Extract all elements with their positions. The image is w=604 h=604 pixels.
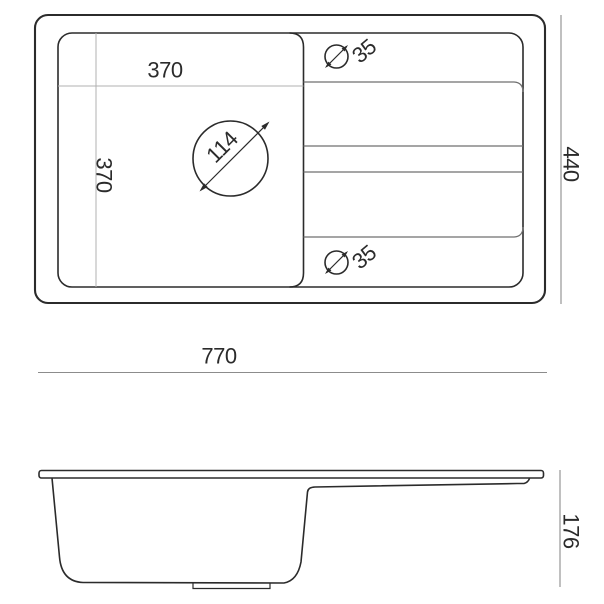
overall-width-label: 770: [201, 344, 236, 369]
drainer-rib-top: [304, 82, 524, 92]
tap-hole-bottom-label: 35: [347, 240, 381, 274]
bowl-profile: [52, 478, 530, 583]
drain-fitting-profile: [193, 583, 270, 589]
tap-hole-bottom: 35: [325, 240, 381, 274]
bowl-width-label: 370: [147, 58, 182, 83]
top-view: 370 370 114 35 35: [35, 15, 584, 373]
overall-depth-label: 440: [559, 146, 584, 181]
rim-flange-profile: [39, 471, 544, 479]
drawing-canvas: 370 370 114 35 35: [0, 0, 604, 604]
drain-diameter-label: 114: [201, 126, 243, 168]
drainer-rib-bottom: [304, 227, 524, 237]
sink-technical-drawing: 370 370 114 35 35: [0, 0, 604, 604]
overall-height-label: 176: [559, 513, 584, 548]
tap-hole-top: 35: [325, 34, 381, 68]
bowl-depth-label: 370: [92, 157, 117, 192]
side-view: 176: [39, 470, 584, 589]
sink-inner-outline: [58, 33, 523, 287]
bowl-right-edge: [290, 33, 304, 287]
tap-hole-top-label: 35: [347, 34, 381, 68]
